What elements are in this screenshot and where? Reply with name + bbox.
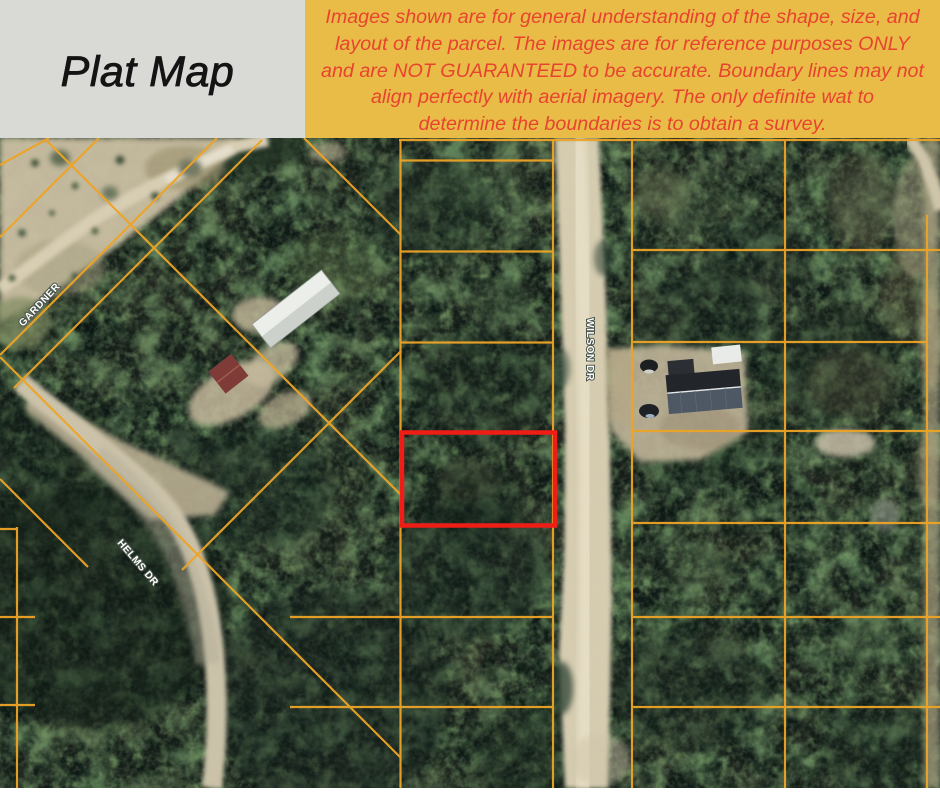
svg-text:WILSON DR: WILSON DR: [584, 318, 595, 381]
